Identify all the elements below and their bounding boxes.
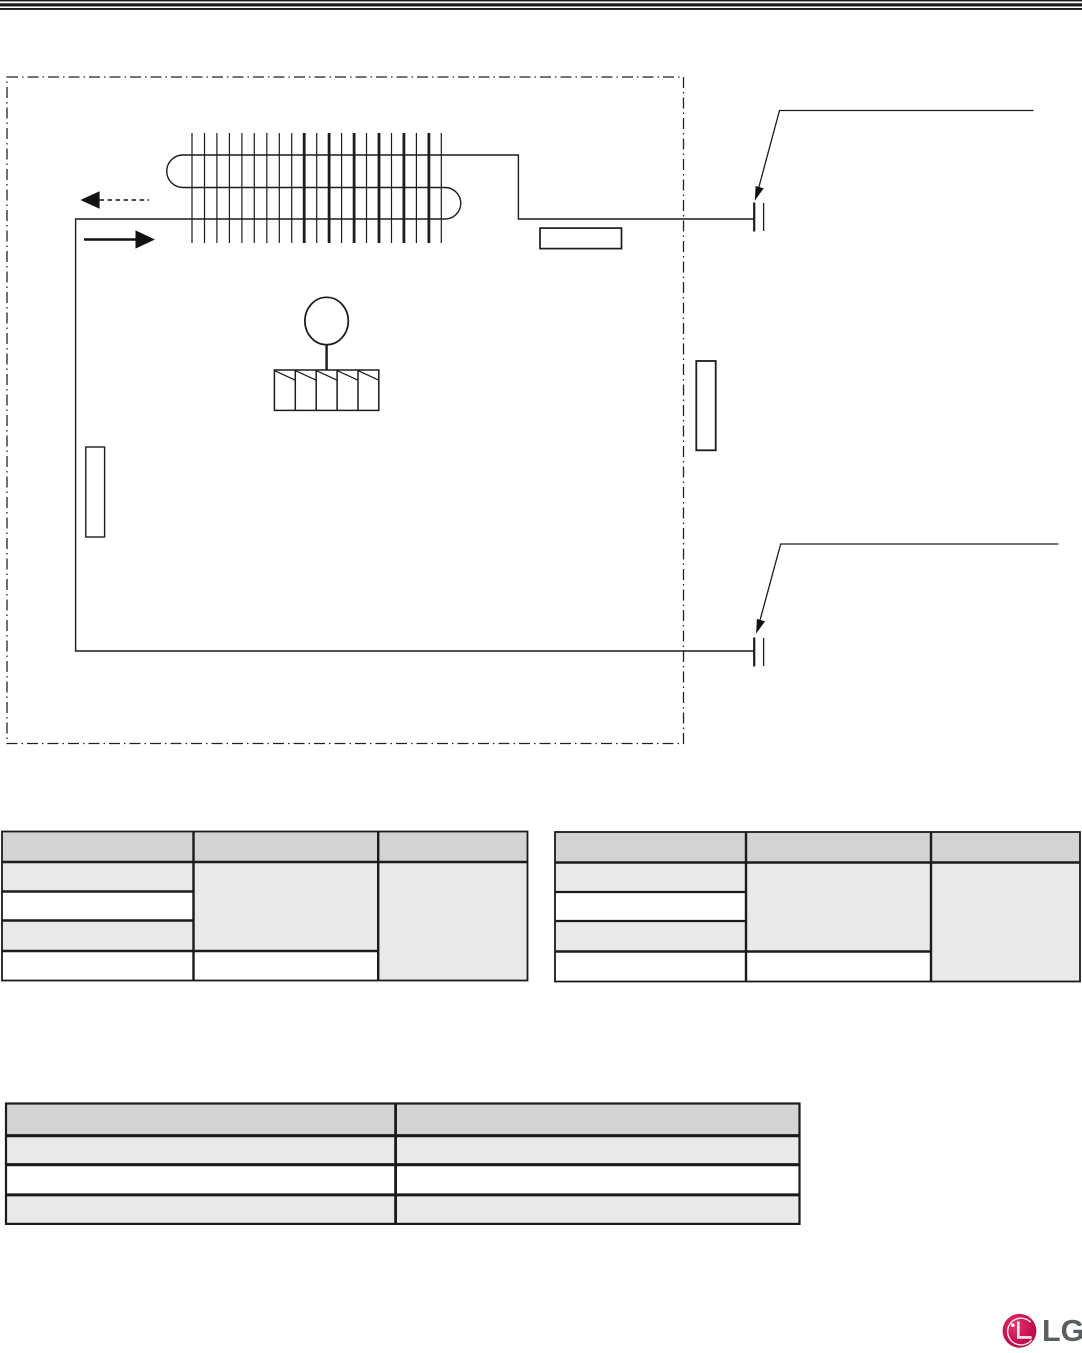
svg-text:LG: LG [1042,1314,1082,1348]
